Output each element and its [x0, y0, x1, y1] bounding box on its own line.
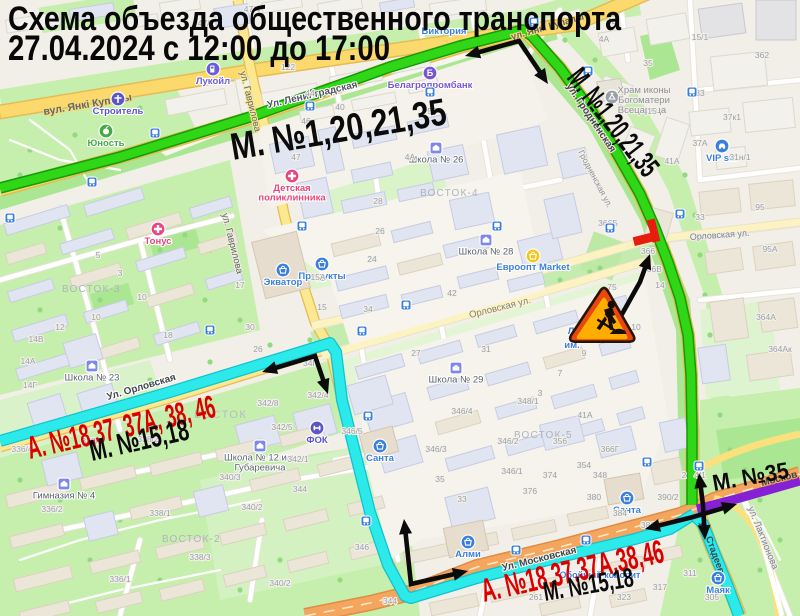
svg-text:Школа № 28: Школа № 28 [459, 247, 514, 258]
svg-text:Санта: Санта [366, 453, 395, 464]
svg-text:35: 35 [435, 474, 445, 484]
svg-text:342/8: 342/8 [257, 398, 279, 408]
svg-text:поликлинника: поликлинника [258, 193, 326, 204]
svg-text:2: 2 [682, 470, 687, 480]
svg-text:346/4: 346/4 [451, 406, 473, 416]
svg-text:37А: 37А [692, 138, 707, 148]
svg-text:ФОК: ФОК [306, 435, 327, 446]
svg-text:95А: 95А [762, 244, 777, 254]
svg-text:342/4: 342/4 [307, 390, 329, 400]
svg-text:ВОСТОК-2: ВОСТОК-2 [162, 534, 221, 545]
svg-text:348/1: 348/1 [517, 396, 539, 406]
svg-text:342/1: 342/1 [287, 454, 309, 464]
svg-text:366Г: 366Г [601, 444, 620, 454]
svg-text:364Ак: 364Ак [768, 344, 792, 354]
svg-text:28: 28 [373, 196, 383, 206]
svg-text:366: 366 [641, 246, 655, 256]
svg-text:42: 42 [447, 288, 457, 298]
svg-text:346/2: 346/2 [497, 436, 519, 446]
svg-text:Строитель: Строитель [93, 106, 144, 117]
svg-text:Экватор: Экватор [264, 277, 303, 288]
svg-text:Евроопт Market: Евроопт Market [496, 262, 570, 273]
svg-text:305: 305 [705, 592, 719, 602]
svg-text:41А: 41А [577, 410, 592, 420]
svg-text:346/1: 346/1 [501, 466, 523, 476]
svg-text:342/5: 342/5 [271, 422, 293, 432]
svg-text:15: 15 [647, 106, 657, 116]
svg-text:27.04.2024 с 12:00 до 17:00: 27.04.2024 с 12:00 до 17:00 [8, 29, 390, 68]
svg-text:14В: 14В [28, 334, 43, 344]
svg-text:27: 27 [411, 348, 421, 358]
svg-text:33: 33 [457, 494, 467, 504]
svg-text:24: 24 [367, 254, 377, 264]
svg-text:346: 346 [355, 542, 369, 552]
svg-text:338/1: 338/1 [149, 508, 171, 518]
svg-text:Школа № 26: Школа № 26 [409, 155, 464, 166]
svg-text:336/2: 336/2 [41, 504, 63, 514]
svg-text:9: 9 [582, 348, 587, 358]
svg-text:26: 26 [253, 344, 263, 354]
svg-text:26: 26 [375, 226, 385, 236]
svg-text:340/3: 340/3 [219, 472, 241, 482]
svg-text:Юность: Юность [88, 138, 125, 149]
svg-text:31н/1: 31н/1 [729, 152, 751, 162]
svg-text:354: 354 [577, 460, 591, 470]
svg-text:3: 3 [118, 268, 123, 278]
svg-text:ВОСТОК-3: ВОСТОК-3 [62, 284, 121, 295]
svg-text:15/1: 15/1 [692, 32, 709, 42]
svg-text:10: 10 [631, 322, 641, 332]
svg-text:95: 95 [755, 202, 765, 212]
svg-text:390/2: 390/2 [657, 492, 679, 502]
svg-text:380: 380 [587, 492, 601, 502]
svg-text:14: 14 [655, 280, 665, 290]
svg-text:Алми: Алми [455, 549, 481, 560]
svg-text:317: 317 [653, 582, 667, 592]
svg-text:311: 311 [683, 568, 697, 578]
svg-text:41А: 41А [664, 156, 679, 166]
svg-text:344: 344 [293, 484, 307, 494]
svg-text:340/2: 340/2 [269, 578, 291, 588]
svg-text:15А: 15А [310, 272, 325, 282]
svg-text:14Г: 14Г [23, 380, 37, 390]
svg-text:37к1: 37к1 [723, 112, 741, 122]
svg-text:Губаревича: Губаревича [234, 463, 286, 474]
svg-text:384: 384 [613, 508, 627, 518]
svg-text:10: 10 [91, 312, 101, 322]
svg-text:Лукойл: Лукойл [196, 76, 230, 87]
svg-text:Тонус: Тонус [144, 236, 171, 247]
svg-text:35: 35 [643, 58, 653, 68]
svg-text:33: 33 [695, 212, 705, 222]
svg-text:376: 376 [523, 486, 537, 496]
svg-text:Б: Б [427, 68, 434, 78]
svg-text:44: 44 [305, 88, 315, 98]
svg-text:5: 5 [96, 250, 101, 260]
svg-text:374: 374 [543, 470, 557, 480]
svg-text:4А: 4А [405, 152, 416, 162]
svg-text:336/1: 336/1 [109, 574, 131, 584]
svg-text:364А: 364А [756, 312, 776, 322]
svg-text:30: 30 [245, 322, 255, 332]
svg-text:Гимназия № 4: Гимназия № 4 [33, 491, 95, 502]
svg-text:14А: 14А [20, 356, 35, 366]
svg-text:362: 362 [755, 50, 769, 60]
svg-text:ВОСТОК-4: ВОСТОК-4 [420, 188, 479, 199]
svg-text:7: 7 [558, 368, 563, 378]
svg-text:Школа № 23: Школа № 23 [65, 373, 120, 384]
svg-text:346/5: 346/5 [341, 426, 363, 436]
svg-text:340/2: 340/2 [241, 502, 263, 512]
svg-text:17: 17 [235, 280, 245, 290]
svg-text:18: 18 [163, 330, 173, 340]
svg-text:15: 15 [317, 302, 327, 312]
svg-text:338/3: 338/3 [189, 552, 211, 562]
svg-text:Школа № 29: Школа № 29 [429, 375, 484, 386]
svg-text:356: 356 [553, 436, 567, 446]
svg-text:346/3: 346/3 [425, 444, 447, 454]
svg-text:348: 348 [593, 470, 607, 480]
svg-text:10: 10 [137, 292, 147, 302]
svg-text:31: 31 [481, 344, 491, 354]
svg-text:344: 344 [383, 596, 397, 606]
svg-text:12: 12 [55, 322, 65, 332]
svg-text:34: 34 [363, 304, 373, 314]
